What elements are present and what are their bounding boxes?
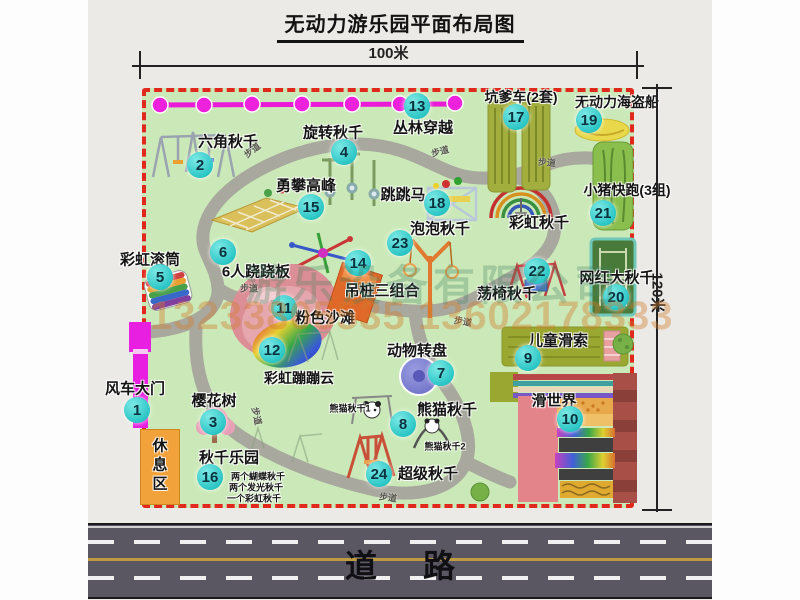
- page-title: 无动力游乐园平面布局图: [0, 8, 800, 43]
- title-text: 无动力游乐园平面布局图: [277, 8, 524, 43]
- height-dimension-tick-top: [642, 87, 672, 89]
- road: 道路: [88, 523, 712, 599]
- width-dimension-line: [132, 65, 644, 67]
- park-area: [142, 88, 634, 508]
- height-dimension-tick-bottom: [642, 509, 672, 511]
- road-label: 道路: [88, 541, 712, 587]
- width-dimension-label: 100米: [140, 42, 637, 63]
- plan-diagram: 无动力游乐园平面布局图 100米 120米: [0, 0, 800, 600]
- road-edge-line: [88, 526, 712, 528]
- rest-area-box: [140, 429, 180, 505]
- height-dimension-label: 120米: [648, 269, 669, 317]
